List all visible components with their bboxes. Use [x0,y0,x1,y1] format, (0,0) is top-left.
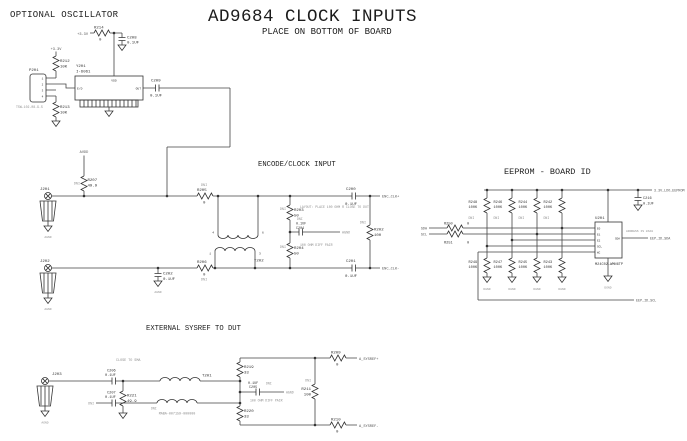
ref-label: R246 [494,201,503,205]
ref-label: T201 [202,375,212,379]
resistor-R210: R210 0 [330,419,346,435]
gnd-label: DGND [533,288,540,291]
value-label: 100K [469,266,478,270]
net-label: AVDD [80,151,89,155]
resistor-R247: R247 100K DGND [494,258,517,291]
gnd-label: DGND [483,288,490,291]
eeprom-section: EEPROM - BOARD ID 3.3V_LDO_EEPROM C216 0… [421,167,685,304]
resistor-R243: R243 100K DGND [544,258,567,291]
ref-label: C206 [107,370,116,374]
ref-label: C208 [127,37,137,41]
connector-P201: P201 TSW-102-08-G-S 1 2 3 4 [16,69,46,109]
capacitor-C206: C206 0.1UF [105,370,116,385]
ref-label: R214 [94,27,104,31]
ref-label: R248 [469,201,478,205]
net-label-3v3-eeprom: 3.3V_LDO_EEPROM [654,190,685,194]
ref-label: R249 [469,261,478,265]
schematic-canvas: OPTIONAL OSCILLATOR AD9684 CLOCK INPUTS … [0,0,687,441]
ref-label: C216 [643,197,652,201]
value-label: 0.1UF [150,95,163,99]
sysref-section: EXTERNAL SYSREF TO DUT CLOSE TO SMA J203… [37,325,378,435]
value-label: 100K [519,266,528,270]
ref-label: R219 [244,366,254,370]
resistor-R214: R214 0 [94,27,110,43]
transformer-T202: 4 6 1 3 T202 [209,232,264,264]
ref-label: R221 [127,395,137,399]
wires [52,156,381,282]
encode-heading: ENCODE/CLOCK INPUT [258,161,336,169]
net-label-sda: SDA [421,228,428,232]
ref-label: J202 [40,260,50,264]
resistor-R206: R206 0 DNI [197,261,213,283]
resistor-R245: R245 100K DGND [519,258,542,291]
gnd-label: AGND [342,232,350,236]
layout-note: LAYOUT: PLACE 100 OHM R CLOSE TO DUT [300,205,369,209]
resistor-R202: DNI R202 100 [360,222,384,241]
value-label: 100K [544,206,553,210]
capacitor-C202: C202 0.1UF AGND [154,273,176,295]
value-label: 0.1UF [345,203,358,207]
ref-label: R243 [544,261,553,265]
dni-label: DNI [494,216,500,220]
dni-label: DNI [297,217,303,221]
pin-label-sda: SDA [615,238,620,241]
pin-number: 4 [212,232,214,235]
ref-label: C201 [346,260,356,264]
dni-label: DNI [74,183,80,187]
ref-label: J201 [40,188,50,192]
value-label: 0.1UF [643,203,654,207]
ref-label: R204 [294,247,304,251]
value-label: 100K [494,206,503,210]
resistor-R212: +3.3V R212 10K [51,48,71,71]
value-label: 0 [467,223,469,227]
ref-label: R210 [331,419,341,423]
dni-label: DNI [88,402,94,406]
wires [46,33,230,196]
value-label: 100 [374,234,382,238]
capacitor-C216: C216 0.1UF [634,197,654,211]
capacitor-C209: C209 0.1UF [150,80,163,99]
pin-number: 6 [262,232,264,235]
ref-label: R244 [519,201,528,205]
pin-label: E2 [597,240,601,243]
ref-label: R206 [197,261,207,265]
pin-number: 3 [259,253,261,256]
value-label: 100K [494,266,503,270]
encode-section: ENCODE/CLOCK INPUT J201 AGND J202 AGND A… [40,151,399,311]
value-label: I-6061 [76,71,91,75]
resistor-R219: R219 33 [237,362,254,377]
gnd-label: AGND [41,422,48,425]
ref-label: R211 [301,388,311,392]
ref-label: R212 [60,60,70,64]
value-label: 0 [336,431,339,435]
pin-number: 1 [42,78,44,81]
ref-label: R251 [444,242,453,246]
sysref-heading: EXTERNAL SYSREF TO DUT [146,325,242,333]
resistor-R221: R221 49.9 [119,391,137,419]
ref-label: R220 [244,410,254,414]
value-label: 0.1UF [105,374,116,378]
pin-number: 3 [42,90,44,93]
value-label: 33 [244,416,249,420]
capacitor-C205: 0.1UF C205 DNI AGND [248,382,294,396]
value-label: 100K [469,206,478,210]
value-label: 0.1UF [163,278,176,282]
dni-label: DNI [201,279,207,283]
resistor-R211: DNI R211 100 [301,379,318,400]
ref-label: J203 [52,373,62,377]
value-label: 100K [544,266,553,270]
part-label: TSW-102-08-G-S [16,105,43,109]
net-label-clk-p: ENC_CLK+ [382,196,399,200]
dni-label: DNI [201,184,207,188]
resistor-R207: AVDD DNI R207 49.9 [74,151,98,191]
dni-label: DNI [305,379,311,383]
net-label: +3.3V [77,33,89,37]
close-to-sma-note: CLOSE TO SMA [116,359,141,363]
value-label: 0.1UF [345,275,358,279]
value-label: 49.9 [88,185,98,189]
value-label: 0.1UF [105,396,116,400]
wires [429,190,652,300]
ref-label: R247 [494,261,503,265]
ref-label: R203 [294,209,304,213]
ref-label: C209 [151,80,161,84]
gnd-label: DGND [604,287,611,290]
gnd-label: AGND [286,391,294,395]
value-label: 0 [203,202,206,206]
value-label: 50 [294,253,299,257]
net-label-clk-m: ENC_CLK- [382,268,399,272]
capacitor-C204: DNI 0.1UF C204 AGND [296,217,350,236]
gnd-label: AGND [154,291,161,294]
resistor-R249: R249 100K DGND [469,258,492,291]
dni-label: DNI [469,216,475,220]
net-label-id-scl: EEP_ID_SCL [636,300,656,304]
ref-label: R242 [544,201,553,205]
resistor-R213: R213 10K [52,102,70,127]
pin-label-vdd: VDD [111,80,117,83]
ref-label: C207 [107,392,116,396]
header: OPTIONAL OSCILLATOR AD9684 CLOCK INPUTS … [10,7,417,37]
schematic-page: OPTIONAL OSCILLATOR AD9684 CLOCK INPUTS … [0,0,687,441]
value-label: 10K [60,112,68,116]
junction-dots [113,32,169,198]
pin-label-out: OUT [136,88,142,91]
resistor-R205: DNI R205 0 [197,184,213,206]
ref-label: R250 [444,223,453,227]
value-label: 0 [99,39,102,43]
ref-label: R207 [88,179,98,183]
gnd-label: DGND [508,288,515,291]
dni-label: DNI [266,382,272,386]
pin-label: WC [597,252,601,255]
net-label-3v3-rail: +3.3V [77,33,89,37]
capacitor-C201: C201 0.1UF [345,260,358,279]
value-label: 10K [60,66,68,70]
eeprom-chip-U201: U201 M24C02-WMN6TP ADDRESS IS 0XA0 E0 E1… [595,217,653,290]
value-label: 49.9 [127,400,137,404]
dni-label: DNI [519,216,525,220]
capacitor-C200: C200 0.1UF [345,188,358,207]
ref-label: C205 [249,386,257,390]
resistor-R251: R251 0 [444,231,469,246]
dni-label: DNI [360,222,366,226]
dni-label: DNI [280,246,286,250]
value-label: 0 [336,364,339,368]
resistor-R220: R220 33 [237,406,254,421]
part-label: M24C02-WMN6TP [595,263,623,267]
ref-label: C202 [163,273,173,277]
ref-label: U201 [595,217,605,221]
dni-label: DNI [544,216,550,220]
value-label: 0 [467,242,469,246]
ref-label: P201 [29,69,39,73]
gnd-label: DGND [558,288,565,291]
chip-note: ADDRESS IS 0XA0 [626,230,653,233]
resistor-R250: R250 0 [444,223,469,232]
pin-label: E1 [597,234,601,237]
dni-label: DNI [280,208,286,212]
net-label-scl: SCL [421,234,427,238]
ref-label: C200 [346,188,356,192]
pin-label: SCL [597,246,602,249]
pin-label: E0 [597,228,601,231]
ref-label: R205 [197,189,207,193]
oscillator-section: +3.3V R214 0 C208 0.1UF +3.3V R212 10K R… [16,27,230,198]
gnd-label: AGND [44,308,51,311]
gnd-label: AGND [44,236,51,239]
ref-label: R202 [374,229,384,233]
ref-label: T202 [254,260,264,264]
page-title: AD9684 CLOCK INPUTS [208,7,417,27]
diff-pair-note: 100 OHM DIFF PAIR [250,399,283,403]
ref-label: R245 [519,261,528,265]
diff-pair-note: 100 OHM DIFF PAIR [300,243,333,247]
net-label-sysref-m: A_SYSREF- [359,425,378,429]
pin-number: 1 [209,253,211,256]
net-label-id-sda: EEP_ID_SDA [650,238,671,242]
page-subtitle: PLACE ON BOTTOM OF BOARD [262,27,392,37]
net-label: +3.3V [51,48,63,52]
pin-label-ed: E/D [77,87,83,91]
osc-section-heading: OPTIONAL OSCILLATOR [10,10,119,20]
value-label: 0 [203,274,206,278]
capacitor-C208: C208 0.1UF [118,37,140,51]
dni-label: DNI [151,407,157,411]
resistor-R209: R209 0 [330,352,346,368]
net-label-sysref-p: A_SYSREF+ [359,358,378,362]
eeprom-heading: EEPROM - BOARD ID [504,167,591,177]
part-label: MABA-007159-000000 [159,413,196,417]
value-label: 33 [244,372,249,376]
value-label: 100 [304,394,312,398]
pin-number: 2 [42,84,44,87]
pin-number: 4 [42,96,44,99]
capacitor-C207: C207 0.1UF DNI [88,392,116,407]
ref-label: R213 [60,106,70,110]
value-label: 0.1UF [127,42,140,46]
ref-label: Y201 [76,65,86,69]
ref-label: C204 [296,227,304,231]
value-label: 100K [519,206,528,210]
ref-label: R209 [331,352,341,356]
